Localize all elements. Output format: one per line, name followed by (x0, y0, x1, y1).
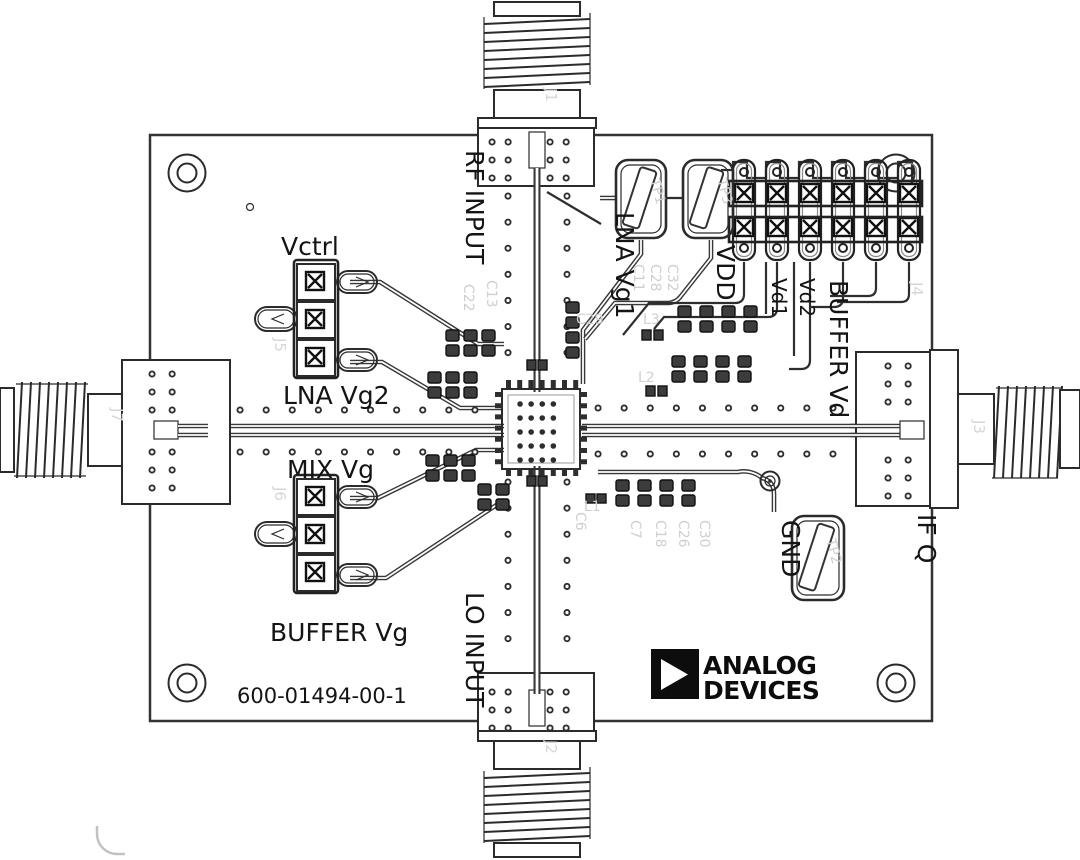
label-vd1: Vd1 (767, 278, 791, 317)
refdes-j4: J4 (908, 281, 926, 296)
refdes-c30: C30 (696, 520, 712, 548)
adi-logo-text-line2: DEVICES (703, 676, 819, 705)
refdes-c6: C6 (572, 512, 588, 531)
refdes-c13: C13 (483, 280, 499, 308)
refdes-c28: C28 (647, 264, 663, 292)
label-buffer-vd: BUFFER Vd (824, 280, 853, 418)
refdes-j6: J6 (271, 486, 289, 501)
sma-connector-right (850, 350, 1080, 508)
part-number: 600-01494-00-1 (237, 684, 407, 708)
label-lna-vg1: LNA Vg1 (610, 212, 639, 319)
refdes-c29: C29 (576, 312, 604, 328)
adi-logo: ANALOG DEVICES (651, 649, 819, 705)
label-vctrl: Vctrl (281, 232, 339, 261)
sma-connector-bottom (478, 664, 596, 857)
window-corner-artifact (97, 826, 125, 854)
label-gnd: GND (776, 520, 805, 577)
refdes-c22: C22 (460, 284, 476, 312)
label-vd2: Vd2 (795, 278, 819, 317)
label-lo-input: LO INPUT (460, 592, 489, 708)
refdes-j7: J7 (108, 407, 126, 422)
refdes-j2: J2 (542, 739, 560, 754)
refdes-l3: L3 (643, 312, 660, 328)
sma-connector-top (478, 2, 596, 196)
refdes-j1: J1 (542, 87, 560, 102)
label-rf-input: RF INPUT (460, 150, 489, 265)
refdes-c7: C7 (627, 520, 643, 539)
label-mix-vg: MIX Vg (287, 455, 374, 484)
refdes-c26: C26 (675, 520, 691, 548)
refdes-c32: C32 (664, 264, 680, 292)
refdes-c18: C18 (652, 520, 668, 548)
pcb-assembly-drawing: J1 J2 J3 J4 J5 J6 J7 TP1 TP3 TP2 C13 C22… (0, 0, 1080, 860)
label-buffer-vg: BUFFER Vg (270, 618, 408, 647)
board-drawing-svg: J1 J2 J3 J4 J5 J6 J7 TP1 TP3 TP2 C13 C22… (0, 0, 1080, 860)
label-vdd: VDD (711, 245, 740, 301)
sma-connector-left (0, 360, 230, 504)
refdes-l2: L2 (638, 370, 655, 386)
refdes-j5: J5 (271, 337, 289, 352)
label-if-q: IF Q (912, 514, 941, 563)
label-lna-vg2: LNA Vg2 (283, 381, 390, 410)
refdes-j3: J3 (970, 419, 988, 434)
